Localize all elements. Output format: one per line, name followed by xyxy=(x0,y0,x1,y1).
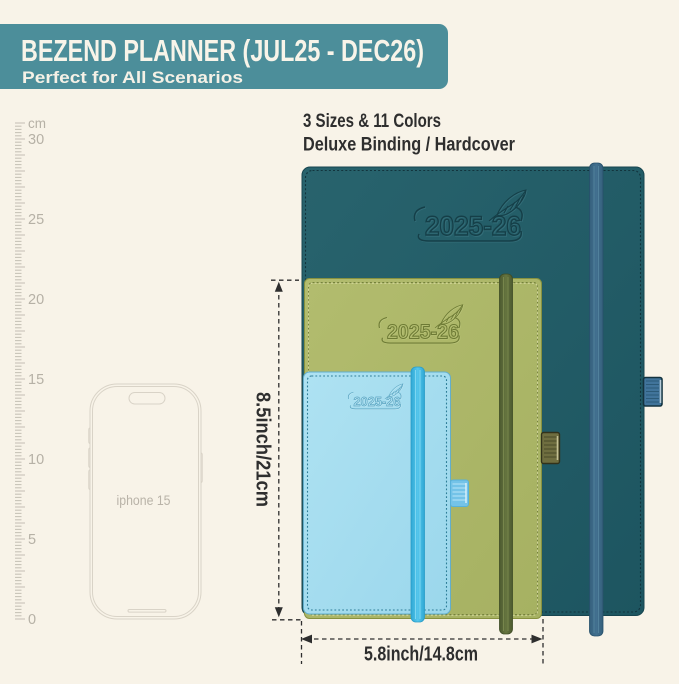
svg-text:8.5inch/21cm: 8.5inch/21cm xyxy=(252,392,274,507)
svg-text:iphone 15: iphone 15 xyxy=(117,493,171,508)
svg-text:20: 20 xyxy=(28,292,44,308)
svg-text:Deluxe Binding / Hardcover: Deluxe Binding / Hardcover xyxy=(303,135,516,156)
svg-text:Perfect for All Scenarios: Perfect for All Scenarios xyxy=(22,69,243,87)
svg-text:10: 10 xyxy=(28,452,44,468)
svg-text:25: 25 xyxy=(28,212,44,228)
svg-text:5: 5 xyxy=(28,532,36,548)
svg-text:3 Sizes & 11 Colors: 3 Sizes & 11 Colors xyxy=(303,111,441,132)
svg-text:BEZEND PLANNER (JUL25 - DEC26): BEZEND PLANNER (JUL25 - DEC26) xyxy=(21,33,424,68)
svg-text:5.8inch/14.8cm: 5.8inch/14.8cm xyxy=(364,644,478,666)
svg-text:cm: cm xyxy=(28,116,46,131)
svg-text:15: 15 xyxy=(28,372,44,388)
svg-text:30: 30 xyxy=(28,132,44,148)
svg-text:0: 0 xyxy=(28,612,36,628)
